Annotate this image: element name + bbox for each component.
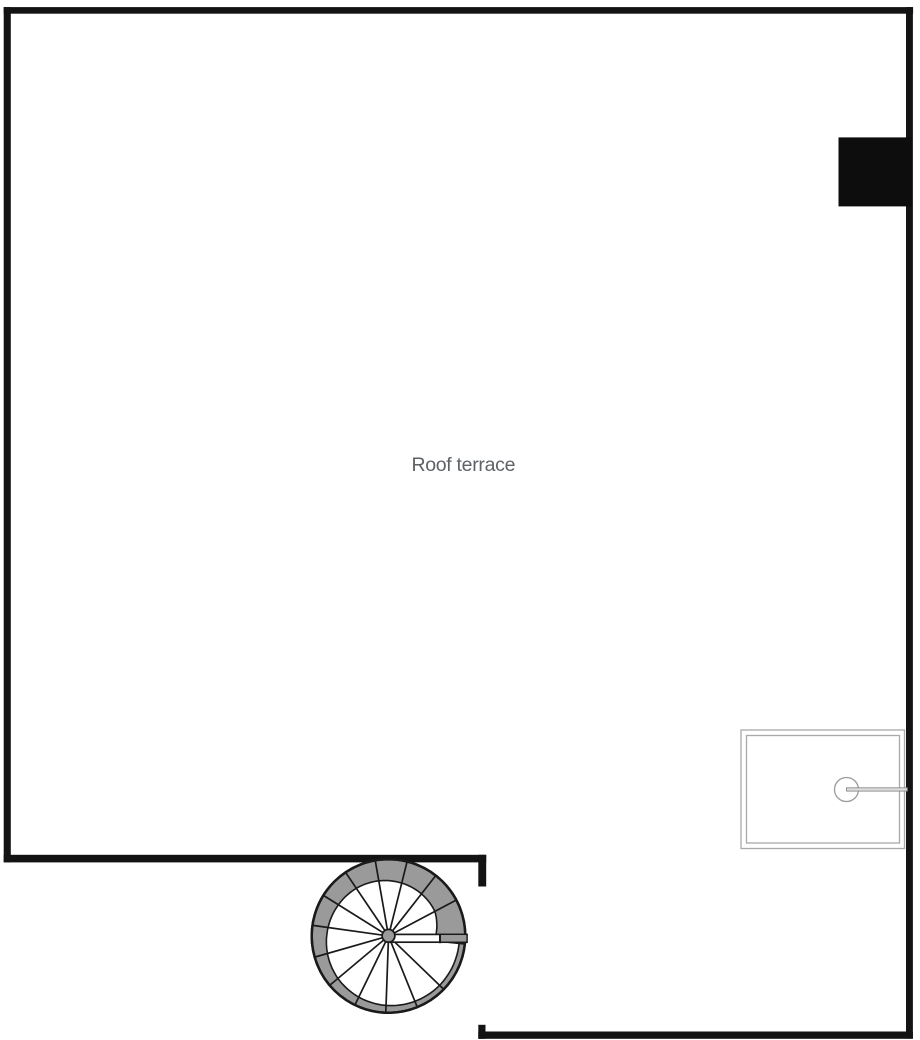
svg-text:Roof terrace: Roof terrace xyxy=(411,454,515,476)
